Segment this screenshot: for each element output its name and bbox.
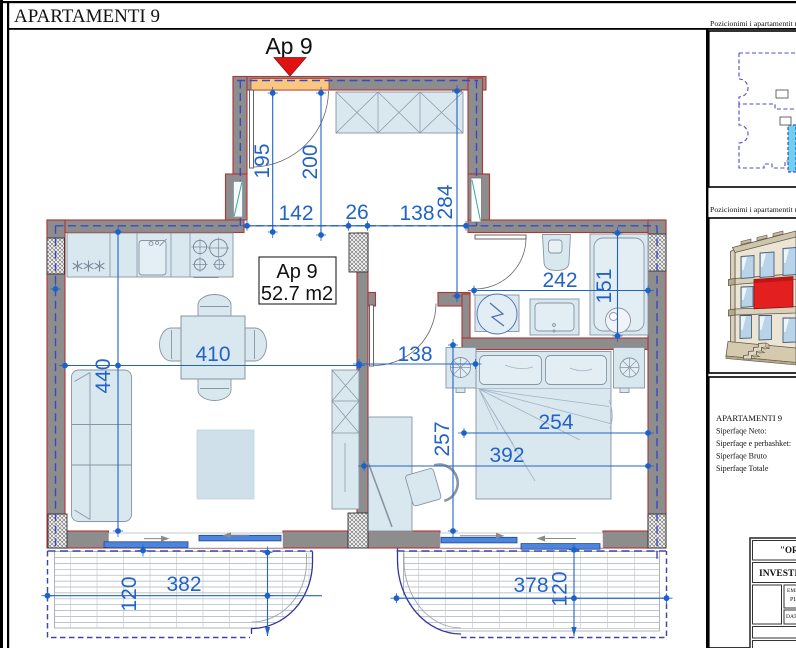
svg-text:120: 120 [118, 576, 141, 611]
svg-text:EMERT.: EMERT. [787, 588, 796, 594]
svg-text:410: 410 [195, 343, 230, 366]
svg-text:254: 254 [538, 411, 573, 434]
svg-text:200: 200 [299, 144, 322, 179]
svg-text:Siperfaqe Bruto: Siperfaqe Bruto [716, 452, 767, 461]
svg-text:Siperfaqe e perbashket:: Siperfaqe e perbashket: [716, 439, 791, 448]
svg-text:120: 120 [549, 571, 572, 606]
svg-text:Siperfaqe Neto:: Siperfaqe Neto: [716, 427, 766, 436]
svg-text:Ap 9: Ap 9 [265, 33, 312, 59]
svg-text:378: 378 [513, 574, 548, 597]
svg-text:284: 284 [434, 184, 457, 219]
svg-text:138: 138 [397, 343, 432, 366]
svg-text:242: 242 [542, 269, 577, 292]
svg-text:52.7 m2: 52.7 m2 [261, 283, 333, 305]
svg-text:APARTAMENTI 9: APARTAMENTI 9 [14, 6, 160, 27]
svg-text:DATA: DATA [786, 614, 796, 620]
svg-text:151: 151 [593, 268, 616, 303]
svg-text:257: 257 [431, 421, 454, 456]
svg-text:195: 195 [251, 143, 274, 178]
svg-text:382: 382 [166, 573, 201, 596]
svg-text:Pozicionimi i apartamentit ne: Pozicionimi i apartamentit ne kat [710, 19, 796, 28]
svg-text:"ORION": "ORION" [780, 545, 796, 555]
svg-text:138: 138 [399, 202, 434, 225]
svg-text:440: 440 [92, 358, 115, 393]
svg-text:26: 26 [345, 201, 368, 224]
svg-text:392: 392 [489, 444, 524, 467]
svg-text:Siperfaqe Totale: Siperfaqe Totale [716, 464, 769, 473]
svg-text:APARTAMENTI 9: APARTAMENTI 9 [716, 413, 782, 423]
svg-text:Ap 9: Ap 9 [276, 261, 317, 283]
svg-text:PL: PL [790, 597, 796, 603]
svg-text:142: 142 [278, 202, 313, 225]
svg-text:INVESTITOR: INVESTITOR [759, 569, 796, 579]
svg-text:Pozicionimi i apartamentit ne: Pozicionimi i apartamentit ne objekt [710, 205, 796, 214]
